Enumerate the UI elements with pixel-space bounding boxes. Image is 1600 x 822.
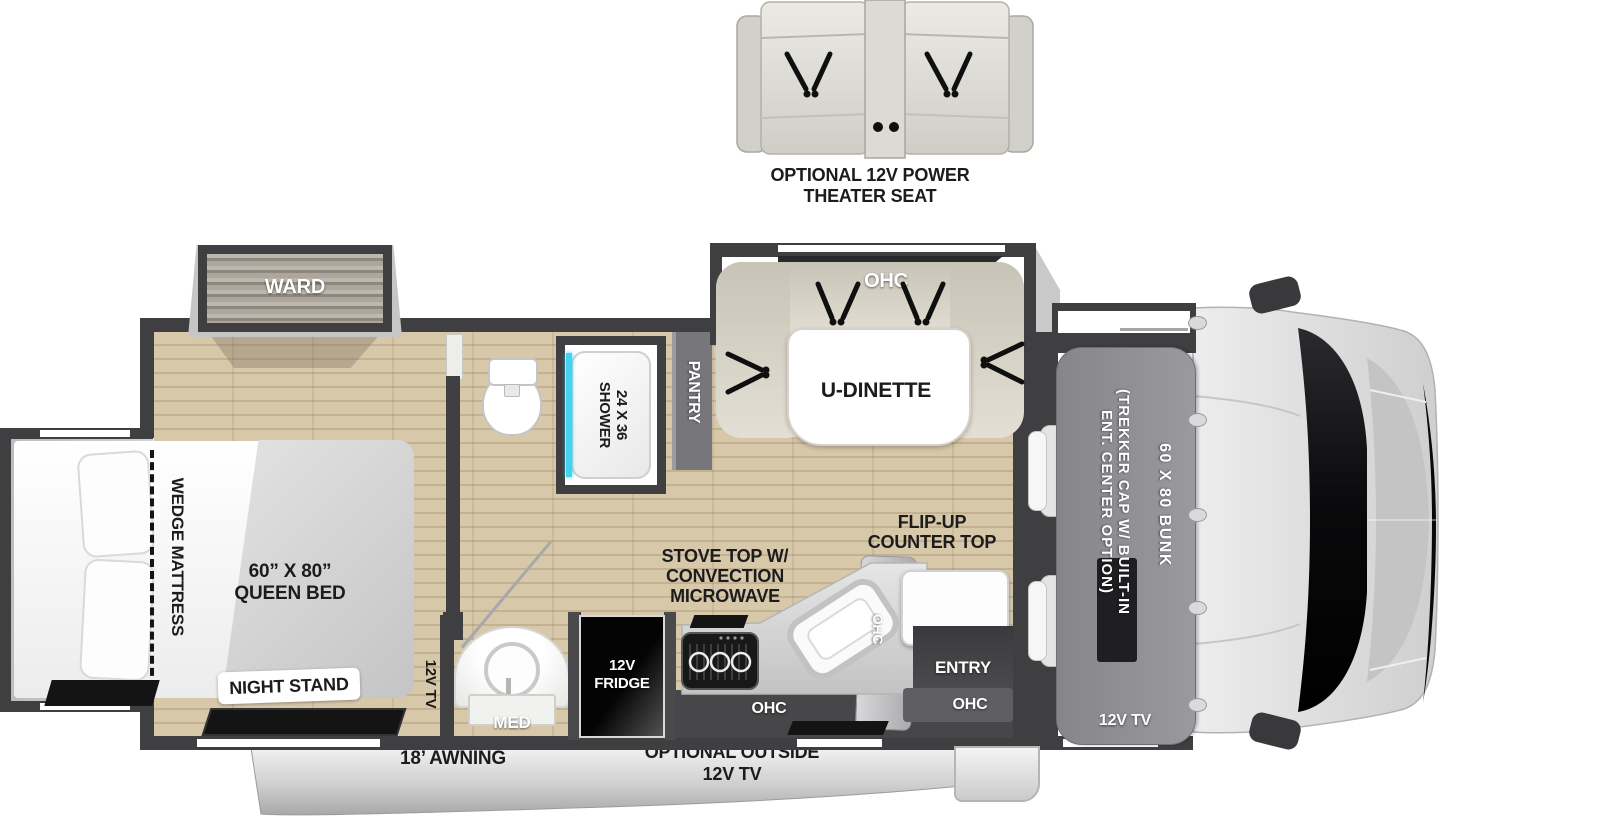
side-mirror-top [1247, 274, 1303, 315]
stove-label-1: STOVE TOP W/ [630, 547, 820, 567]
counter-ohc-vertical: OHC [869, 601, 885, 657]
cupholder [873, 122, 883, 132]
pantry-label: PANTRY [682, 332, 702, 452]
queen-bed-label-1: 60” X 80” [210, 562, 370, 583]
shower-glass [566, 353, 572, 477]
rug [44, 680, 159, 706]
rivet [1188, 698, 1207, 712]
ward-label: WARD [215, 276, 375, 298]
stove-label-2: CONVECTION [630, 567, 820, 587]
dinette-window [778, 245, 1005, 252]
bunk-tv-label: 12V TV [1072, 712, 1178, 730]
stove [681, 630, 759, 692]
rivet [1188, 601, 1207, 615]
bunk-label: 60 X 80 BUNK [1155, 395, 1173, 615]
cupholder [889, 122, 899, 132]
flip-up-label-1: FLIP-UP [832, 513, 1032, 533]
vanity-sink [484, 642, 540, 698]
outside-tv-label-2: 12V TV [622, 765, 842, 785]
rivet [1188, 413, 1207, 427]
left-wall-upper [140, 318, 154, 438]
toilet [482, 358, 542, 434]
theater-seat-label-2: THEATER SEAT [740, 187, 1000, 207]
cab-front [1180, 228, 1460, 808]
rivet [1188, 316, 1207, 330]
bath-wall [446, 376, 460, 616]
rivet [1188, 508, 1207, 522]
window-bedroom [197, 739, 380, 747]
dinette-seatbelt-marks [712, 278, 1036, 418]
stove-label-3: MICROWAVE [630, 587, 820, 607]
queen-bed-label-2: QUEEN BED [210, 584, 370, 605]
theater-console [865, 0, 905, 158]
stove-cover [690, 615, 749, 628]
entry-step [954, 746, 1040, 802]
fridge: 12V FRIDGE [568, 610, 678, 740]
bedroom-tv-label: 12V TV [420, 639, 438, 729]
rv-floorplan: OPTIONAL 12V POWER THEATER SEAT 18’ AWNI… [0, 0, 1600, 822]
wedge-mattress-label: WEDGE MATTRESS [166, 452, 186, 662]
entry-label: ENTRY [917, 659, 1009, 678]
kitchen-mat [787, 721, 889, 735]
flip-up-label-2: COUNTER TOP [832, 533, 1032, 553]
window-kitchen [797, 739, 882, 747]
night-stand-mat [201, 708, 406, 736]
pillow [79, 558, 155, 681]
bath-cabinet [446, 334, 463, 380]
shower-label: 24 X 36 SHOWER [593, 365, 629, 465]
awning-label: 18’ AWNING [368, 749, 538, 770]
trekker-label: (TREKKER CAP W/ BUILT-IN ENT. CENTER OPT… [1091, 337, 1131, 667]
entry-ohc-label: OHC [938, 696, 1002, 714]
med-label: MED [470, 714, 554, 733]
wedge-mattress-line [150, 450, 154, 688]
theater-seat [735, 0, 1035, 160]
counter-ohc-label: OHC [737, 700, 801, 718]
bed-slide-window-top [40, 430, 130, 437]
theater-seat-label-1: OPTIONAL 12V POWER [740, 166, 1000, 186]
front-cap-window-line [1120, 328, 1188, 331]
pillow [76, 450, 155, 559]
